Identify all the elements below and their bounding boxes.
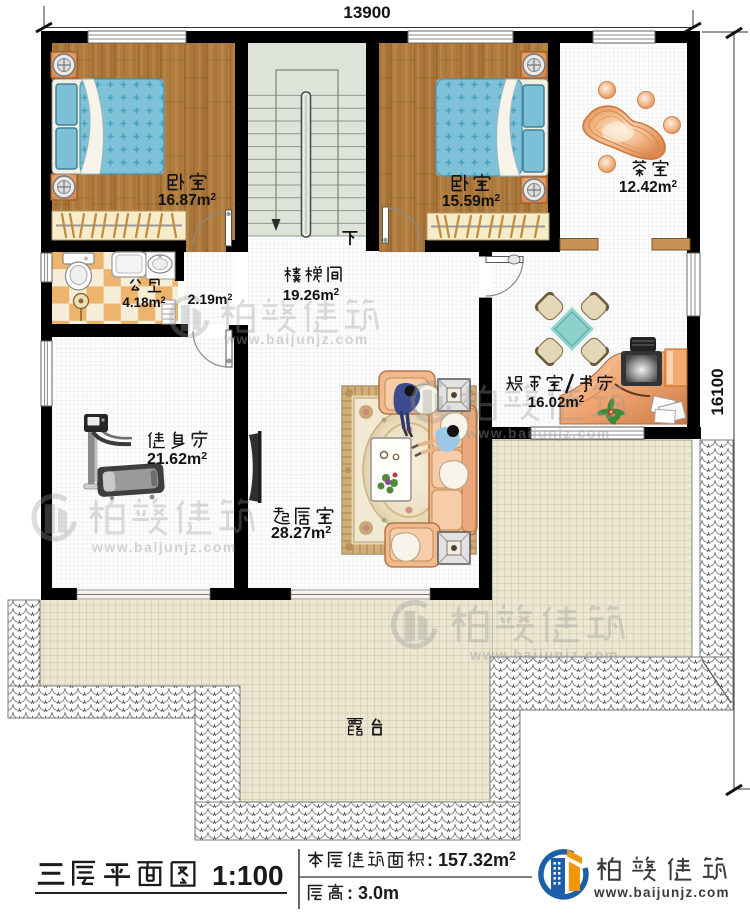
svg-text:28.27m2: 28.27m2: [271, 524, 331, 542]
svg-text:: 157.32m2: : 157.32m2: [427, 849, 516, 870]
svg-text:: 3.0m: : 3.0m: [347, 883, 399, 903]
svg-text:www.baijunjz.com: www.baijunjz.com: [465, 425, 611, 441]
svg-text:15.59m2: 15.59m2: [442, 193, 501, 210]
svg-text:16.87m2: 16.87m2: [158, 192, 217, 209]
svg-text:2.19m2: 2.19m2: [188, 291, 233, 307]
svg-text:19.26m2: 19.26m2: [283, 287, 340, 304]
svg-text:13900: 13900: [343, 3, 390, 22]
svg-text:12.42m2: 12.42m2: [619, 179, 678, 196]
svg-text:www.baijunjz.com: www.baijunjz.com: [469, 648, 619, 664]
svg-text:16100: 16100: [708, 368, 727, 415]
svg-text:21.62m2: 21.62m2: [147, 450, 207, 468]
svg-text:www.baijunjz.com: www.baijunjz.com: [91, 539, 237, 555]
svg-text:www.baijunjz.com: www.baijunjz.com: [593, 885, 730, 900]
svg-text:www.baijunjz.com: www.baijunjz.com: [223, 331, 369, 347]
svg-text:16.02m2: 16.02m2: [528, 394, 585, 411]
svg-text:1:100: 1:100: [212, 860, 284, 891]
svg-text:4.18m2: 4.18m2: [122, 295, 165, 310]
